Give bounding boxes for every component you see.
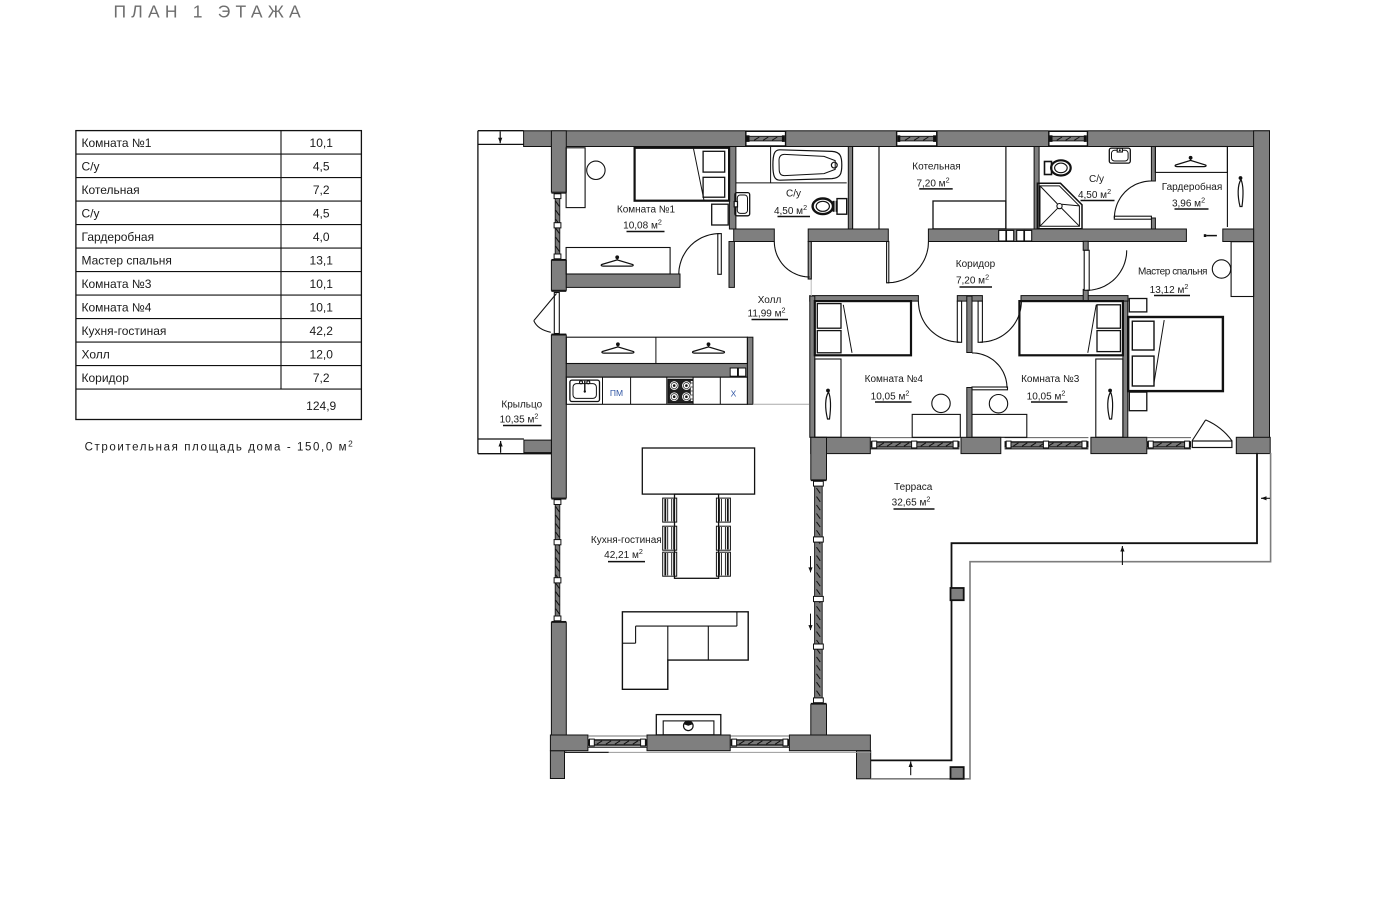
svg-text:Комната №4: Комната №4 xyxy=(82,300,152,314)
svg-text:Мастер спальня: Мастер спальня xyxy=(1138,267,1207,278)
svg-text:Мастер спальня: Мастер спальня xyxy=(82,253,172,267)
svg-text:42,21 м2: 42,21 м2 xyxy=(604,547,643,561)
svg-text:4,0: 4,0 xyxy=(313,230,330,244)
svg-text:4,50 м2: 4,50 м2 xyxy=(774,203,807,217)
svg-text:Коридор: Коридор xyxy=(956,259,996,270)
svg-text:Кухня-гостиная: Кухня-гостиная xyxy=(82,324,167,338)
svg-text:124,9: 124,9 xyxy=(306,399,336,413)
svg-text:Коридор: Коридор xyxy=(82,371,130,385)
svg-text:10,1: 10,1 xyxy=(310,277,334,291)
svg-text:13,12 м2: 13,12 м2 xyxy=(1150,282,1189,296)
svg-text:Гардеробная: Гардеробная xyxy=(82,230,155,244)
svg-text:10,05 м2: 10,05 м2 xyxy=(871,389,910,403)
svg-text:Комната №1: Комната №1 xyxy=(82,136,152,150)
svg-text:ПМ: ПМ xyxy=(610,388,623,398)
svg-text:10,1: 10,1 xyxy=(310,300,334,314)
svg-text:10,35 м2: 10,35 м2 xyxy=(500,412,539,426)
svg-text:4,50 м2: 4,50 м2 xyxy=(1078,187,1111,201)
svg-text:11,99 м2: 11,99 м2 xyxy=(748,306,786,320)
svg-text:10,1: 10,1 xyxy=(310,136,334,150)
svg-text:С/у: С/у xyxy=(82,206,100,220)
svg-text:32,65 м2: 32,65 м2 xyxy=(892,495,931,509)
svg-text:10,05 м2: 10,05 м2 xyxy=(1027,389,1066,403)
svg-text:Кухня-гостиная: Кухня-гостиная xyxy=(591,535,662,546)
svg-text:7,20 м2: 7,20 м2 xyxy=(916,176,949,190)
svg-text:Терраса: Терраса xyxy=(894,482,933,493)
svg-text:Холл: Холл xyxy=(758,295,782,306)
svg-text:X: X xyxy=(731,389,737,399)
svg-text:13,1: 13,1 xyxy=(310,253,334,267)
svg-text:Крыльцо: Крыльцо xyxy=(501,399,542,410)
svg-text:Котельная: Котельная xyxy=(912,162,960,173)
svg-text:С/у: С/у xyxy=(1089,174,1104,185)
svg-text:Комната №1: Комната №1 xyxy=(617,205,676,216)
svg-text:Комната №4: Комната №4 xyxy=(865,374,924,385)
svg-text:4,5: 4,5 xyxy=(313,159,330,173)
svg-text:7,20 м2: 7,20 м2 xyxy=(956,273,989,287)
svg-text:Комната №3: Комната №3 xyxy=(1021,374,1080,385)
svg-text:Котельная: Котельная xyxy=(82,183,140,197)
svg-text:ПЛАН 1 ЭТАЖА: ПЛАН 1 ЭТАЖА xyxy=(114,2,306,22)
svg-text:Комната №3: Комната №3 xyxy=(82,277,152,291)
svg-text:7,2: 7,2 xyxy=(313,183,330,197)
svg-text:С/у: С/у xyxy=(82,159,100,173)
svg-text:Холл: Холл xyxy=(82,347,110,361)
svg-text:3,96 м2: 3,96 м2 xyxy=(1172,196,1205,210)
svg-text:4,5: 4,5 xyxy=(313,206,330,220)
svg-text:42,2: 42,2 xyxy=(310,324,334,338)
svg-text:10,08 м2: 10,08 м2 xyxy=(623,218,662,232)
svg-text:7,2: 7,2 xyxy=(313,371,330,385)
svg-text:Гардеробная: Гардеробная xyxy=(1162,181,1223,193)
svg-text:12,0: 12,0 xyxy=(310,347,334,361)
svg-text:С/у: С/у xyxy=(786,189,801,200)
svg-text:Строительная площадь дома - 15: Строительная площадь дома - 150,0 м2 xyxy=(85,439,355,454)
